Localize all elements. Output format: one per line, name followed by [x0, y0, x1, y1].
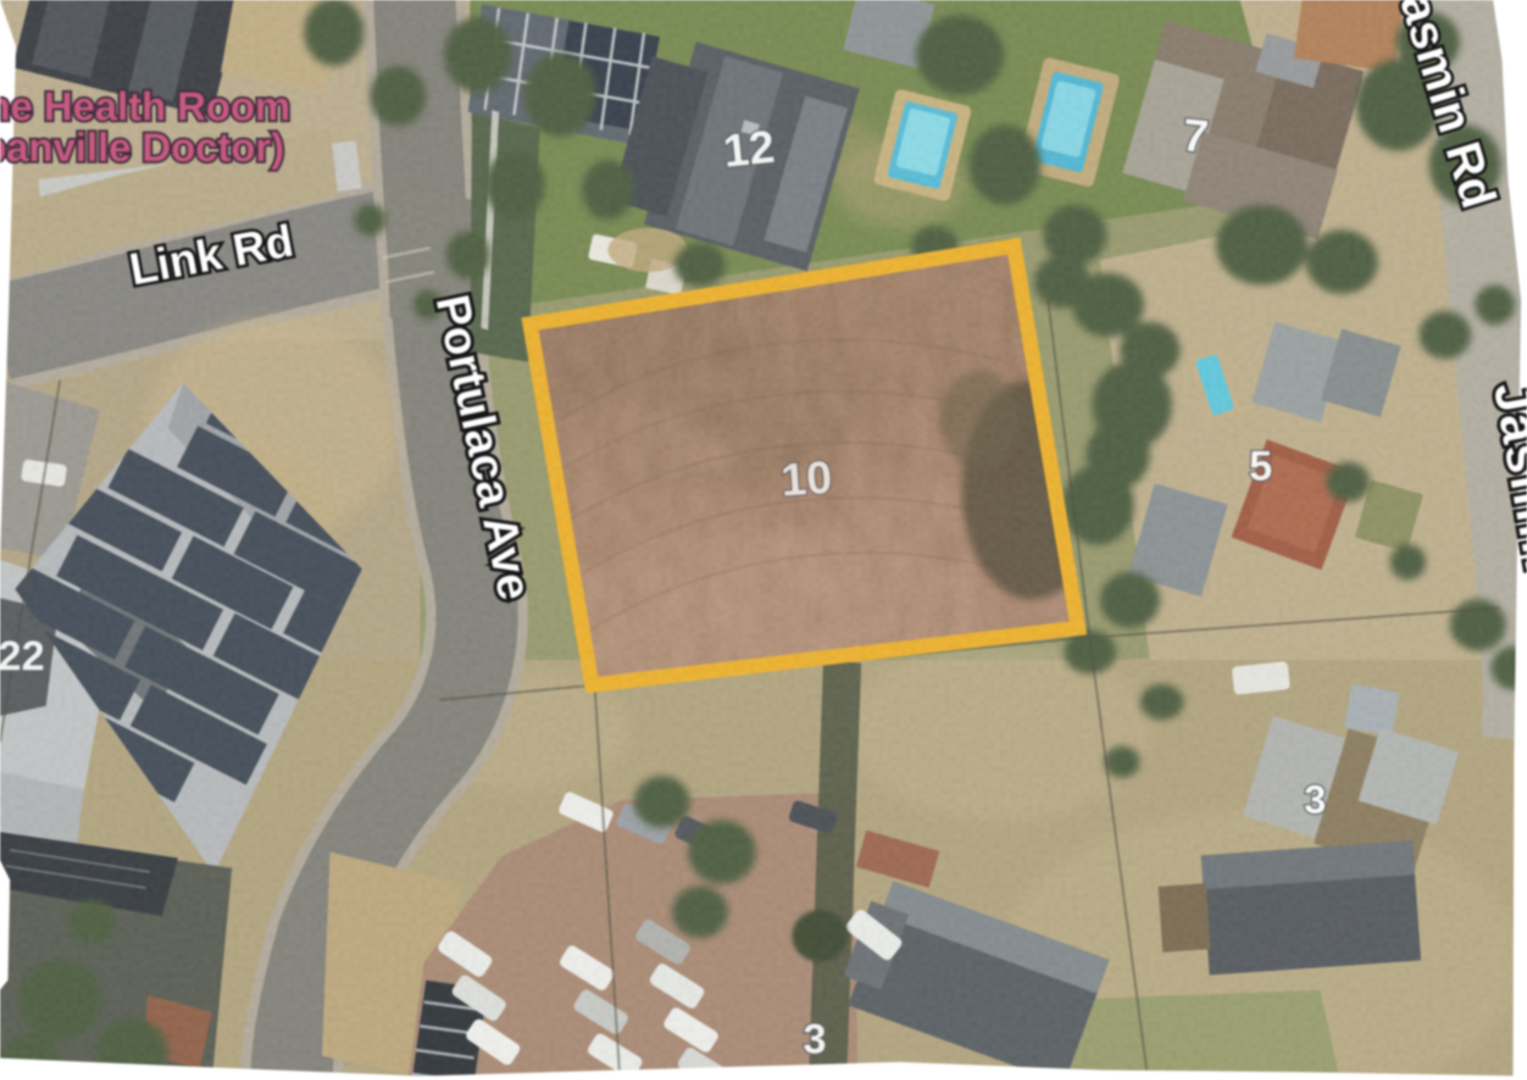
svg-text:ne Health Room: ne Health Room [0, 85, 290, 129]
svg-text:22: 22 [0, 632, 45, 679]
svg-text:7: 7 [1180, 108, 1211, 162]
svg-text:banville Doctor): banville Doctor) [0, 126, 284, 170]
svg-text:3: 3 [1304, 778, 1326, 822]
svg-text:12: 12 [721, 120, 777, 177]
svg-text:5: 5 [1249, 442, 1272, 489]
svg-text:3: 3 [803, 1015, 826, 1062]
svg-text:10: 10 [779, 451, 834, 506]
